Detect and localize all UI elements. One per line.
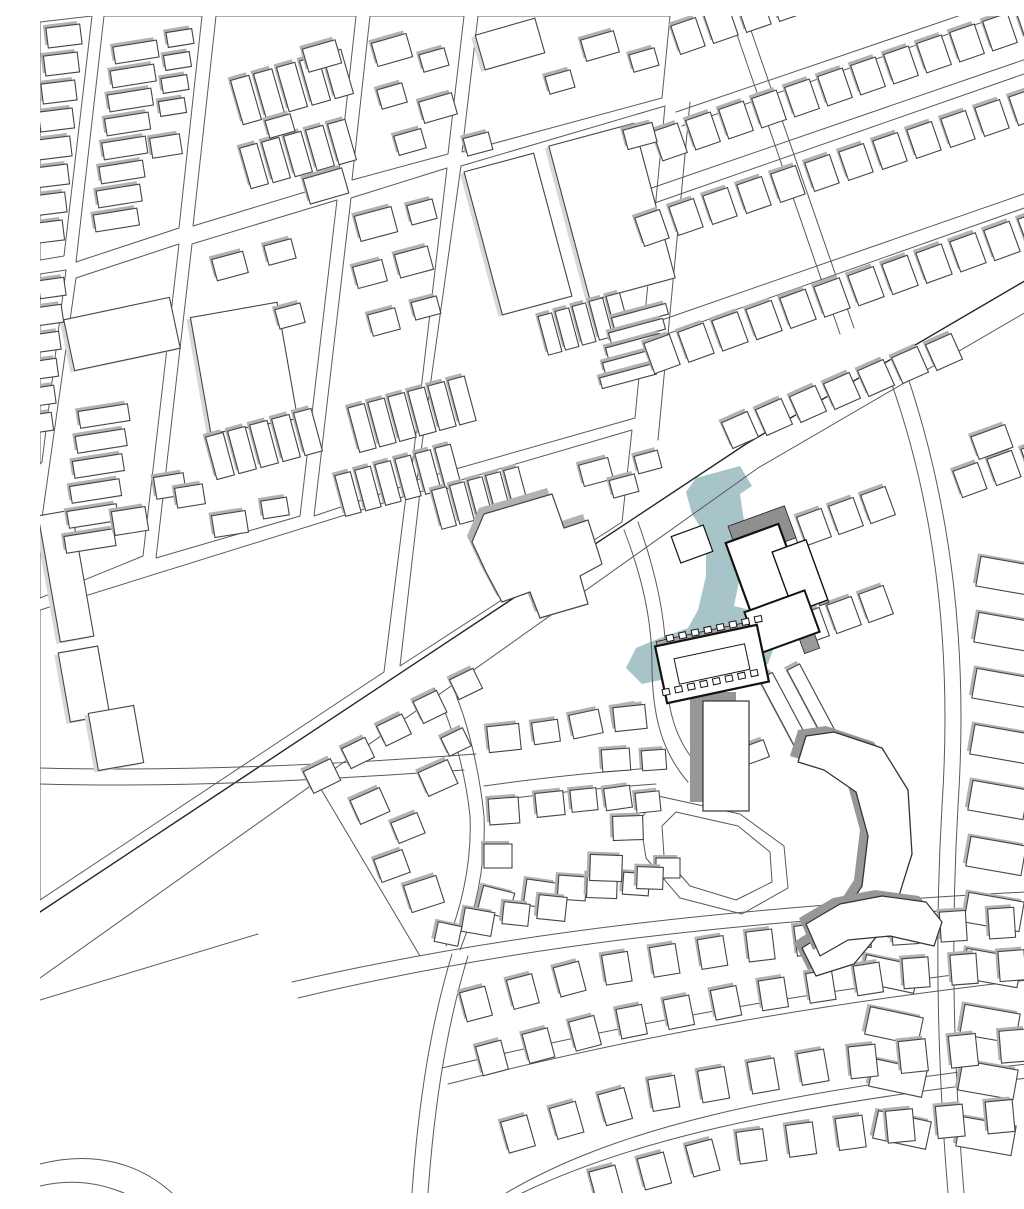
- site-building-balcony: [679, 632, 687, 639]
- building: [40, 220, 65, 244]
- building: [532, 719, 561, 744]
- site-building-balcony: [716, 624, 724, 631]
- building: [710, 986, 741, 1021]
- site-building-balcony: [712, 678, 720, 685]
- building: [535, 791, 565, 818]
- building: [746, 929, 775, 962]
- building: [797, 1049, 829, 1085]
- site-building-balcony: [662, 688, 670, 695]
- building: [261, 497, 289, 519]
- building: [704, 16, 738, 43]
- building: [40, 331, 61, 352]
- building: [40, 412, 54, 433]
- building: [602, 951, 633, 985]
- building: [985, 1099, 1015, 1133]
- building: [835, 1115, 866, 1150]
- building: [758, 977, 788, 1011]
- building: [40, 277, 66, 298]
- building: [40, 108, 75, 132]
- building: [697, 1067, 729, 1103]
- building: [950, 953, 978, 985]
- building: [641, 749, 666, 771]
- building: [976, 556, 1024, 595]
- site-building-balcony: [725, 675, 733, 682]
- building: [649, 943, 680, 977]
- building: [570, 788, 598, 813]
- building: [175, 484, 206, 508]
- building: [747, 1058, 779, 1094]
- building: [601, 748, 630, 772]
- tower-building: [703, 701, 749, 811]
- building: [40, 358, 59, 379]
- street: [412, 954, 452, 1193]
- building: [616, 1004, 647, 1039]
- building: [111, 506, 148, 535]
- site-building-balcony: [738, 672, 746, 679]
- building: [590, 854, 623, 881]
- building: [40, 136, 72, 160]
- building: [648, 1075, 680, 1111]
- site-building-balcony: [742, 618, 750, 625]
- building: [484, 844, 512, 868]
- building: [697, 936, 728, 970]
- building: [885, 1109, 915, 1143]
- site-building-balcony: [700, 680, 708, 687]
- building: [41, 80, 77, 104]
- building: [377, 714, 412, 746]
- site-building-balcony: [675, 686, 683, 693]
- building: [635, 791, 661, 813]
- building: [613, 704, 647, 731]
- building: [637, 867, 664, 890]
- building: [604, 785, 633, 810]
- building: [848, 1044, 878, 1079]
- building: [434, 922, 462, 947]
- building: [999, 1029, 1024, 1063]
- street: [40, 934, 258, 1000]
- building: [40, 304, 64, 325]
- building: [770, 16, 804, 21]
- street: [40, 1159, 172, 1193]
- building: [948, 1033, 978, 1068]
- building: [488, 797, 520, 825]
- building: [487, 723, 522, 752]
- building: [983, 16, 1018, 51]
- building: [998, 950, 1024, 982]
- building: [939, 910, 967, 942]
- building: [46, 24, 82, 48]
- building: [150, 134, 183, 158]
- site-building-balcony: [666, 634, 674, 641]
- building: [350, 788, 390, 825]
- building: [663, 995, 694, 1030]
- building: [88, 705, 143, 770]
- street: [40, 1182, 124, 1193]
- building: [40, 192, 67, 216]
- building: [40, 385, 56, 406]
- building: [902, 957, 930, 989]
- building: [853, 962, 883, 996]
- building: [461, 908, 495, 937]
- building: [40, 164, 70, 188]
- building: [935, 1104, 965, 1138]
- building: [418, 760, 458, 797]
- site-building-balcony: [704, 626, 712, 633]
- site-plan-svg: [40, 16, 1024, 1193]
- building: [736, 1129, 767, 1164]
- site-building-balcony: [691, 629, 699, 636]
- building: [537, 895, 567, 922]
- building: [502, 902, 530, 927]
- site-plan-figure: [40, 16, 1024, 1193]
- site-building-balcony: [754, 615, 762, 622]
- building: [43, 52, 79, 76]
- building: [988, 907, 1016, 939]
- building: [211, 510, 248, 537]
- site-building-balcony: [687, 683, 695, 690]
- building: [786, 1122, 817, 1157]
- building: [898, 1039, 928, 1074]
- building: [613, 815, 644, 840]
- site-building-balcony: [750, 669, 758, 676]
- site-building-balcony: [729, 621, 737, 628]
